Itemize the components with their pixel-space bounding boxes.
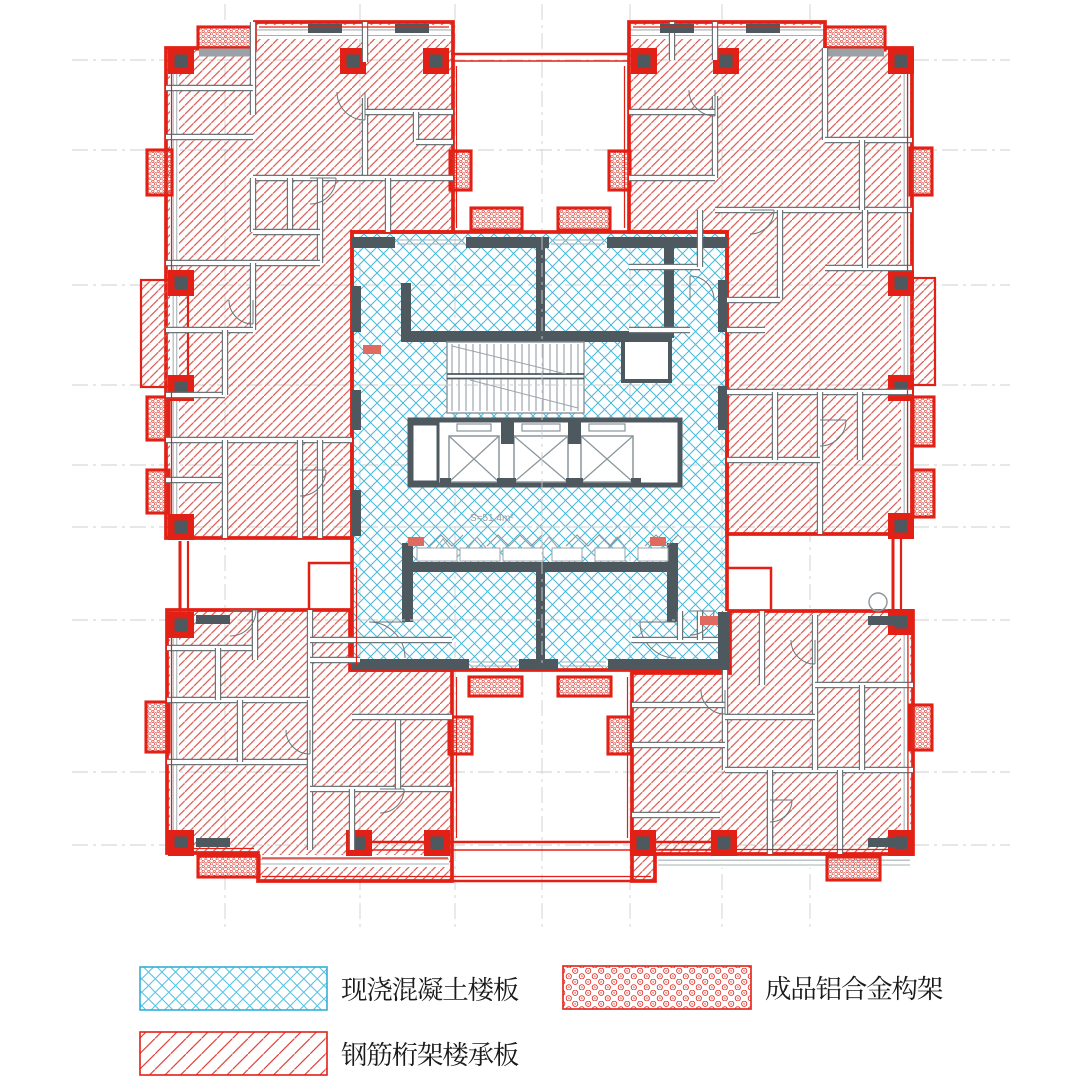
svg-text:S=51.4m²: S=51.4m² xyxy=(470,513,514,524)
